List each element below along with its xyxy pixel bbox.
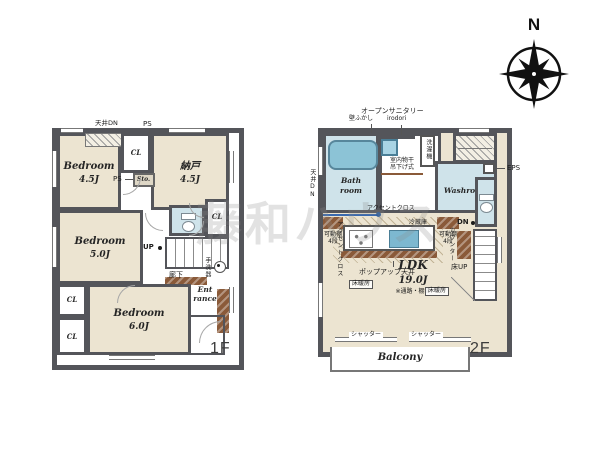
window bbox=[459, 128, 489, 133]
floor-label-2f: 2F bbox=[470, 340, 491, 358]
toilet-2f bbox=[475, 177, 497, 227]
hallway-label: 廊下 bbox=[169, 271, 183, 279]
door-arc bbox=[145, 213, 163, 231]
closet-left-lower: CL bbox=[57, 317, 87, 355]
drying-pole bbox=[381, 173, 423, 175]
room-name: Bedroom bbox=[64, 161, 115, 172]
room-name: 納戸 bbox=[180, 161, 200, 172]
ldk-name: LDK bbox=[398, 258, 427, 272]
hand-wash-dot bbox=[217, 264, 220, 267]
floorplan-1f: Bedroom 4.5J CL 納戸 4.5J Sto. Bedroom 5.0… bbox=[52, 128, 244, 370]
eps-box bbox=[483, 163, 495, 174]
ps-leader-line bbox=[125, 179, 133, 180]
washer-pan bbox=[381, 139, 398, 156]
room-bedroom-45-label: Bedroom 4.5J bbox=[60, 160, 118, 186]
ldk-size: 19.0J bbox=[373, 274, 453, 288]
washing-machine-label: 洗濯機 bbox=[424, 139, 431, 165]
shutter-left-label: シャッター bbox=[349, 332, 383, 339]
stove-icon bbox=[349, 230, 373, 248]
window bbox=[318, 283, 323, 317]
compass-north-label: N bbox=[528, 15, 540, 34]
entrance-door bbox=[229, 287, 234, 313]
window bbox=[497, 237, 502, 263]
stairs-up-dot bbox=[158, 246, 162, 250]
window bbox=[318, 147, 323, 175]
balcony-label: Balcony bbox=[332, 351, 468, 365]
washing-machine: 洗濯機 bbox=[420, 135, 435, 167]
stairs-2f bbox=[473, 229, 497, 301]
leader-line bbox=[371, 124, 372, 133]
accent-cloth-top-label: アクセントクロス bbox=[367, 206, 415, 213]
room-size: 4.5J bbox=[154, 174, 226, 186]
open-sanitary-label: オープンサニタリー bbox=[361, 107, 424, 115]
window bbox=[61, 128, 83, 133]
closet-right: CL bbox=[205, 199, 229, 237]
closet-top: CL bbox=[121, 133, 151, 173]
ps-mid-label: PS bbox=[113, 175, 122, 183]
closet-left-lower-label: CL bbox=[60, 332, 84, 341]
accent-dot bbox=[376, 212, 381, 217]
floor-heating-left: 床暖房 bbox=[349, 280, 373, 289]
closet-top-label: CL bbox=[124, 148, 148, 157]
open-sanitary-sublabel: irodori bbox=[387, 116, 406, 123]
room-name: Bedroom bbox=[114, 308, 165, 319]
window bbox=[229, 151, 234, 183]
ceiling-down-hatch bbox=[85, 133, 123, 147]
ceiling-dn-label-1f: 天井DN bbox=[95, 120, 118, 127]
window bbox=[52, 151, 57, 187]
closet-2f bbox=[453, 133, 497, 163]
floor-heating-right: 床暖房 bbox=[425, 287, 449, 296]
wall-fukashi-bump bbox=[379, 133, 415, 139]
bathroom-line2: room bbox=[326, 186, 376, 196]
closet-left-upper: CL bbox=[57, 284, 87, 317]
window bbox=[109, 355, 155, 360]
indoor-drying-label: 室内物干 吊下げ式 bbox=[383, 157, 421, 171]
window bbox=[169, 128, 205, 133]
balcony: Balcony bbox=[330, 347, 470, 372]
stairs-winder bbox=[451, 277, 475, 301]
shutter-right-label: シャッター bbox=[409, 332, 443, 339]
accent-line bbox=[323, 214, 378, 216]
bathroom-label: Bath room bbox=[326, 176, 376, 196]
ps-leader-line bbox=[149, 128, 150, 134]
room-nando-label: 納戸 4.5J bbox=[154, 160, 226, 186]
stairs-dn-label: DN bbox=[457, 218, 469, 226]
room-size: 6.0J bbox=[90, 321, 188, 333]
compass-icon: N bbox=[499, 10, 569, 116]
ldk-label: LDK 19.0J bbox=[373, 257, 453, 287]
room-size: 5.0J bbox=[60, 249, 140, 261]
kitchen-counter bbox=[343, 225, 435, 251]
floorplan-2f: Bath room 洗濯機 室内物干 吊下げ式 Washroom EPS bbox=[318, 128, 512, 357]
stairs-up-label: UP bbox=[143, 243, 154, 251]
room-bathroom: Bath room bbox=[323, 133, 379, 213]
hanger-pipe bbox=[458, 148, 492, 149]
stairs-dn-dot bbox=[471, 221, 475, 225]
drying-line2: 吊下げ式 bbox=[383, 164, 421, 171]
leader-line bbox=[401, 125, 402, 135]
room-size: 4.5J bbox=[60, 174, 118, 186]
eps-leader bbox=[495, 168, 505, 169]
floor-up-label: 床UP bbox=[451, 263, 467, 271]
fridge-label: 冷蔵庫 bbox=[409, 220, 427, 227]
ceiling-dn-label-2f: 天井DN bbox=[308, 169, 315, 213]
floor-label-1f: 1F bbox=[210, 340, 231, 358]
bathroom-line1: Bath bbox=[326, 176, 376, 186]
accent-cloth-left-label: アクセントクロス bbox=[335, 221, 342, 281]
room-bedroom-50: Bedroom 5.0J bbox=[57, 210, 143, 284]
counter-wood bbox=[457, 231, 471, 259]
closet-right-label: CL bbox=[208, 212, 226, 221]
room-bedroom-60: Bedroom 6.0J bbox=[87, 284, 191, 355]
sink-icon bbox=[389, 230, 419, 248]
room-bedroom-50-label: Bedroom 5.0J bbox=[60, 235, 140, 261]
floorplan-canvas: 藤和ハウス N Bedroom 4.5J CL 納戸 bbox=[0, 0, 600, 450]
wall-fukashi-label: 壁ふかし bbox=[349, 116, 373, 123]
toilet-icon bbox=[479, 194, 494, 213]
room-name: Bedroom bbox=[75, 236, 126, 247]
room-bedroom-60-label: Bedroom 6.0J bbox=[90, 307, 188, 333]
bathtub-icon bbox=[328, 140, 378, 170]
closet-left-upper-label: CL bbox=[60, 295, 84, 304]
window bbox=[52, 227, 57, 267]
eps-label: EPS bbox=[507, 164, 520, 172]
ps-top-label: PS bbox=[143, 120, 152, 128]
hand-wash-icon bbox=[214, 261, 226, 273]
